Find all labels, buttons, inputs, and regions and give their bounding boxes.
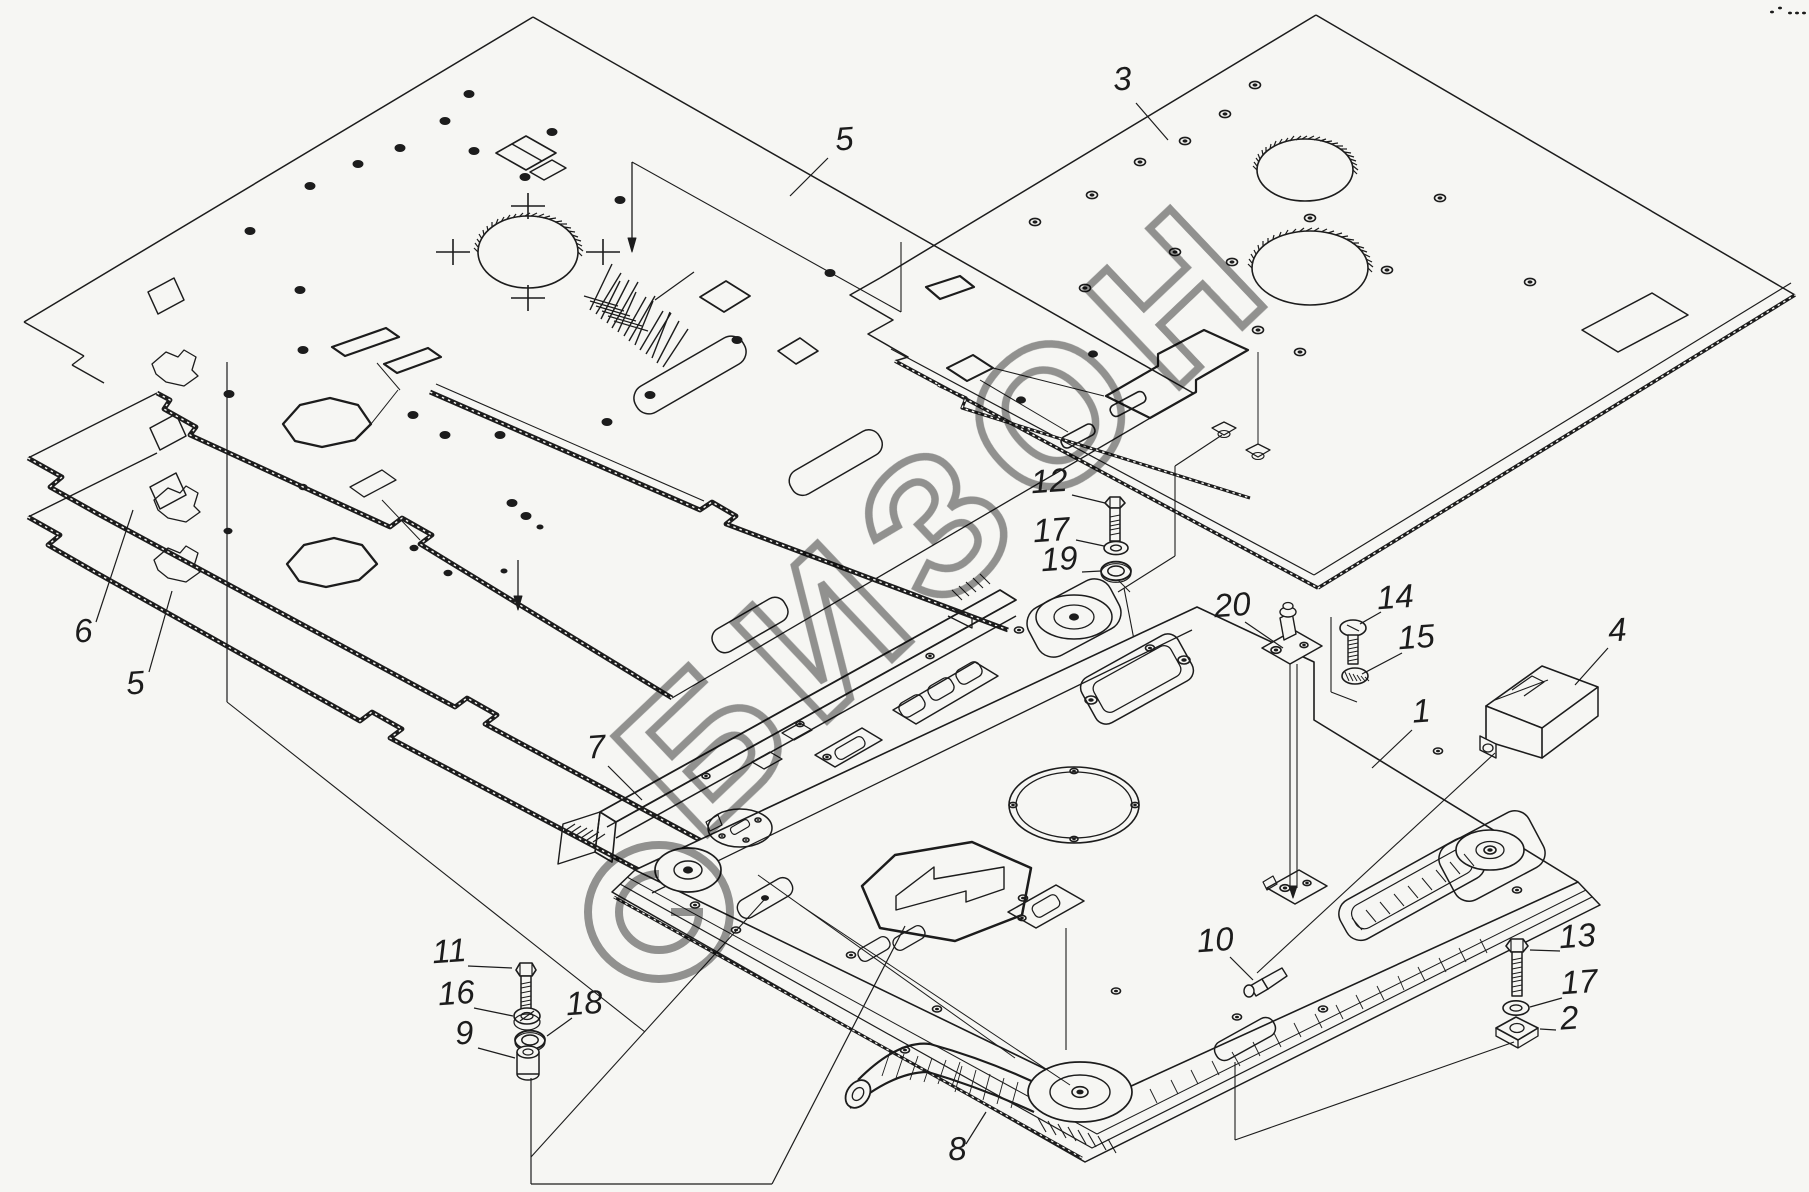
svg-text:13: 13 <box>1558 916 1598 956</box>
svg-text:18: 18 <box>565 983 605 1023</box>
svg-text:19: 19 <box>1040 539 1079 578</box>
svg-text:5: 5 <box>125 663 147 701</box>
svg-text:11: 11 <box>431 931 468 970</box>
svg-text:4: 4 <box>1607 610 1628 648</box>
svg-text:8: 8 <box>947 1129 969 1167</box>
svg-text:9: 9 <box>454 1013 475 1051</box>
svg-text:12: 12 <box>1030 461 1069 500</box>
svg-text:20: 20 <box>1212 585 1253 625</box>
svg-text:1: 1 <box>1411 691 1432 729</box>
svg-text:3: 3 <box>1112 59 1134 97</box>
svg-text:15: 15 <box>1397 617 1437 657</box>
svg-text:16: 16 <box>437 973 477 1013</box>
svg-text:10: 10 <box>1196 920 1236 960</box>
svg-text:5: 5 <box>834 119 856 157</box>
svg-text:6: 6 <box>73 611 95 649</box>
svg-text:2: 2 <box>1558 998 1580 1036</box>
svg-text:17: 17 <box>1560 962 1601 1002</box>
svg-text:14: 14 <box>1376 577 1415 616</box>
